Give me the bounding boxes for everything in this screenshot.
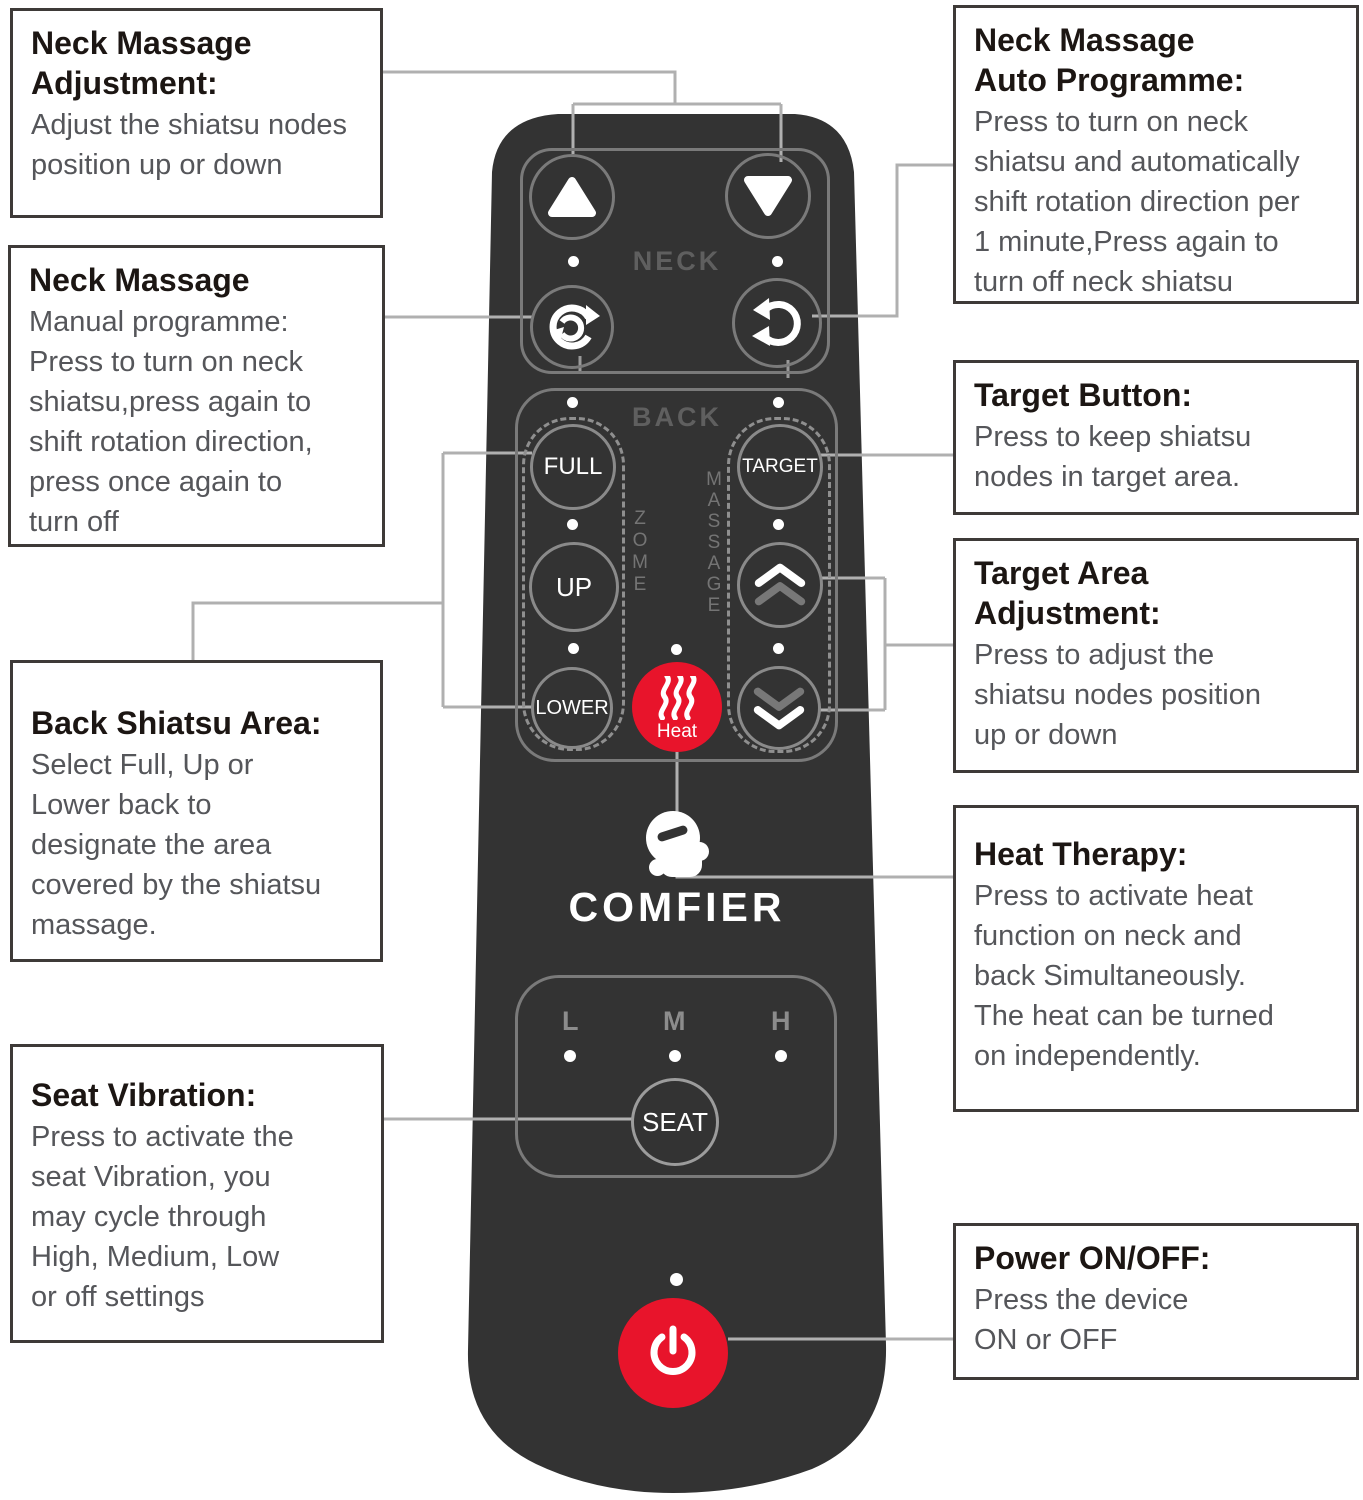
heat-button[interactable]: Heat xyxy=(632,662,722,752)
callout-body: Adjust the shiatsu nodes position up or … xyxy=(31,105,362,185)
callout-body: Press the device ON or OFF xyxy=(974,1280,1338,1360)
rotate-ccw-icon xyxy=(747,293,807,353)
rotate-cw-icon xyxy=(542,297,602,357)
power-button[interactable] xyxy=(618,1298,728,1408)
callout-body: Press to keep shiatsu nodes in target ar… xyxy=(974,417,1338,497)
vibration-high-label: H xyxy=(771,1006,791,1037)
full-button[interactable]: FULL xyxy=(530,424,616,510)
target-up-button[interactable] xyxy=(737,542,823,628)
lower-indicator-dot xyxy=(568,643,579,654)
target-down-indicator-dot xyxy=(773,643,784,654)
chevron-up-icon xyxy=(749,559,811,611)
vibration-low-dot xyxy=(564,1050,576,1062)
callout-body: Press to activate heat function on neck … xyxy=(974,876,1338,1076)
callout-target-button: Target Button: Press to keep shiatsu nod… xyxy=(953,360,1359,515)
callout-seat-vibration: Seat Vibration: Press to activate the se… xyxy=(10,1044,384,1343)
callout-title: Target Button: xyxy=(974,375,1338,415)
up-triangle-icon xyxy=(547,176,597,218)
neck-section-label: NECK xyxy=(607,246,747,277)
callout-body: Press to adjust the shiatsu nodes positi… xyxy=(974,635,1338,755)
callout-title: Neck Massage xyxy=(29,260,364,300)
vibration-low-label: L xyxy=(562,1006,579,1037)
callout-body: Press to turn on neck shiatsu and automa… xyxy=(974,102,1338,302)
callout-body: Select Full, Up or Lower back to designa… xyxy=(31,745,362,945)
callout-title: Back Shiatsu Area: xyxy=(31,703,362,743)
target-button-label: TARGET xyxy=(742,456,818,478)
power-indicator-dot xyxy=(670,1273,683,1286)
target-up-indicator-dot xyxy=(773,519,784,530)
seat-button-label: SEAT xyxy=(642,1107,708,1138)
down-triangle-icon xyxy=(743,175,793,217)
neck-right-indicator-dot xyxy=(772,256,783,267)
lower-button[interactable]: LOWER xyxy=(531,667,613,749)
heat-button-label: Heat xyxy=(657,721,697,743)
callout-power: Power ON/OFF: Press the device ON or OFF xyxy=(953,1223,1359,1380)
neck-up-button[interactable] xyxy=(529,154,615,240)
target-indicator-dot xyxy=(773,397,784,408)
callout-heat-therapy: Heat Therapy: Press to activate heat fun… xyxy=(953,805,1359,1112)
neck-left-indicator-dot xyxy=(568,256,579,267)
mascot-logo xyxy=(640,806,720,886)
diagram-canvas: NECK BACK ZOME MASSAGE FULL TARGET UP xyxy=(0,0,1363,1500)
power-icon xyxy=(643,1323,703,1383)
callout-title: Power ON/OFF: xyxy=(974,1238,1338,1278)
vibration-high-dot xyxy=(775,1050,787,1062)
callout-title: Seat Vibration: xyxy=(31,1075,363,1115)
neck-auto-rotate-button[interactable] xyxy=(732,278,822,368)
up-button-label: UP xyxy=(556,572,592,603)
callout-back-shiatsu-area: Back Shiatsu Area: Select Full, Up or Lo… xyxy=(10,660,383,962)
lower-button-label: LOWER xyxy=(535,697,608,720)
chevron-down-icon xyxy=(748,682,810,734)
callout-title: Target Area Adjustment: xyxy=(974,553,1338,633)
zone-vertical-label: ZOME xyxy=(629,508,651,596)
target-button[interactable]: TARGET xyxy=(737,424,823,510)
up-indicator-dot xyxy=(567,519,578,530)
neck-manual-rotate-button[interactable] xyxy=(530,285,614,369)
callout-title: Neck Massage Adjustment: xyxy=(31,23,362,103)
callout-title: Neck Massage Auto Programme: xyxy=(974,20,1338,100)
back-section-label: BACK xyxy=(607,402,747,433)
vibration-medium-label: M xyxy=(663,1006,686,1037)
callout-target-area: Target Area Adjustment: Press to adjust … xyxy=(953,538,1359,773)
callout-neck-adjustment: Neck Massage Adjustment: Adjust the shia… xyxy=(10,8,383,218)
seat-button[interactable]: SEAT xyxy=(631,1078,719,1166)
massage-vertical-label: MASSAGE xyxy=(703,469,725,616)
heat-waves-icon xyxy=(655,676,699,720)
callout-title: Heat Therapy: xyxy=(974,834,1338,874)
brand-wordmark: COMFIER xyxy=(567,884,787,931)
full-indicator-dot xyxy=(567,397,578,408)
target-down-button[interactable] xyxy=(737,666,821,750)
neck-down-button[interactable] xyxy=(725,153,811,239)
callout-neck-auto: Neck Massage Auto Programme: Press to tu… xyxy=(953,5,1359,304)
full-button-label: FULL xyxy=(544,453,603,481)
callout-body: Manual programme: Press to turn on neck … xyxy=(29,302,364,542)
callout-neck-manual: Neck Massage Manual programme: Press to … xyxy=(8,245,385,547)
up-button[interactable]: UP xyxy=(529,542,619,632)
vibration-medium-dot xyxy=(669,1050,681,1062)
callout-body: Press to activate the seat Vibration, yo… xyxy=(31,1117,363,1317)
heat-indicator-dot xyxy=(671,644,682,655)
